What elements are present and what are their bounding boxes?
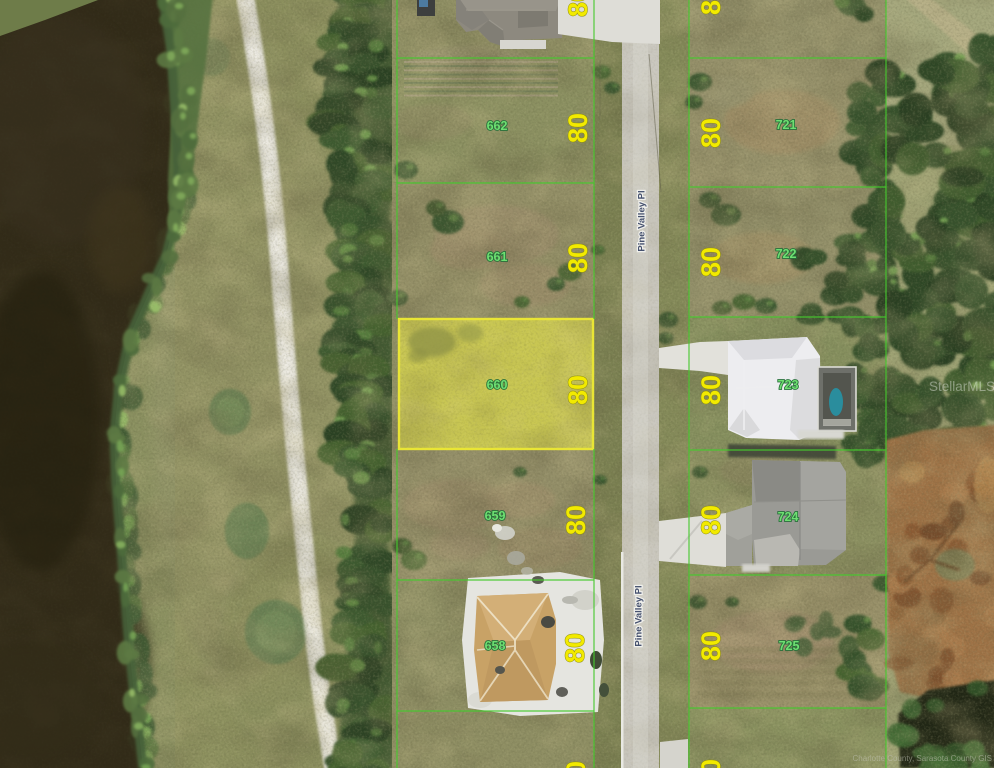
svg-text:80: 80 (563, 113, 593, 143)
svg-text:80: 80 (563, 375, 593, 405)
svg-text:Pine Valley Pl: Pine Valley Pl (634, 585, 645, 646)
svg-text:724: 724 (778, 510, 799, 524)
svg-text:Pine Valley Pl: Pine Valley Pl (637, 190, 648, 251)
svg-text:80: 80 (696, 759, 726, 768)
svg-text:722: 722 (776, 247, 797, 261)
svg-text:80: 80 (563, 0, 593, 17)
svg-text:80: 80 (696, 505, 726, 535)
svg-text:80: 80 (696, 247, 726, 277)
svg-text:80: 80 (696, 631, 726, 661)
svg-text:80: 80 (696, 0, 726, 15)
svg-text:725: 725 (779, 639, 800, 653)
svg-text:661: 661 (487, 250, 508, 264)
svg-text:721: 721 (776, 118, 797, 132)
svg-text:660: 660 (487, 378, 508, 392)
svg-text:80: 80 (563, 243, 593, 273)
svg-text:80: 80 (560, 633, 590, 663)
svg-text:659: 659 (485, 509, 506, 523)
svg-text:658: 658 (485, 639, 506, 653)
svg-text:80: 80 (696, 375, 726, 405)
svg-text:StellarMLS: StellarMLS (929, 379, 994, 394)
svg-text:80: 80 (561, 761, 591, 768)
svg-text:Charlotte County, Sarasota Cou: Charlotte County, Sarasota County GIS (853, 754, 992, 763)
svg-text:723: 723 (778, 378, 799, 392)
svg-text:80: 80 (696, 118, 726, 148)
svg-text:80: 80 (561, 505, 591, 535)
svg-text:662: 662 (487, 119, 508, 133)
